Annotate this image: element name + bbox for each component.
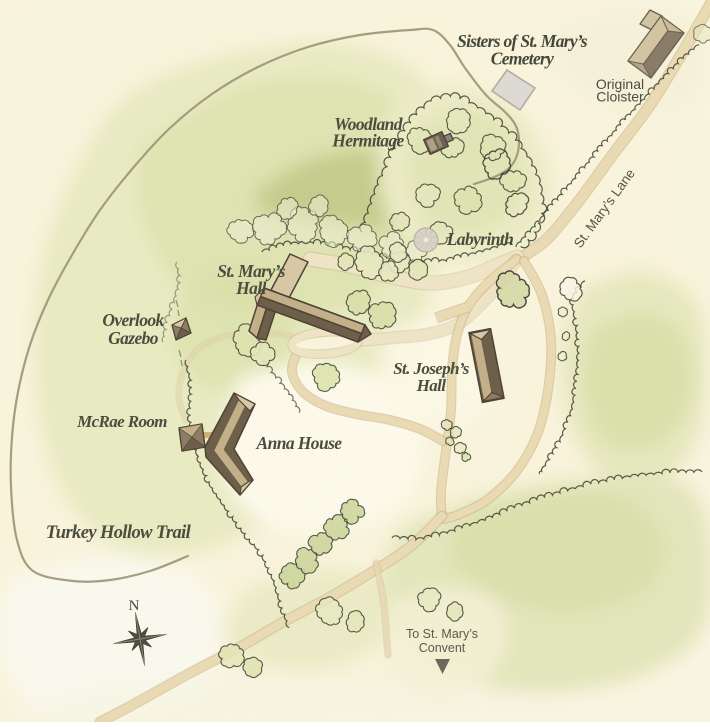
svg-text:OriginalCloister: OriginalCloister	[596, 76, 644, 105]
svg-text:McRae Room: McRae Room	[76, 412, 167, 431]
svg-text:Turkey Hollow Trail: Turkey Hollow Trail	[46, 523, 192, 543]
svg-text:OverlookGazebo: OverlookGazebo	[102, 310, 164, 348]
svg-text:WoodlandHermitage: WoodlandHermitage	[331, 114, 404, 151]
svg-text:Labyrinth: Labyrinth	[446, 229, 514, 249]
svg-text:Anna House: Anna House	[256, 433, 343, 453]
svg-text:N: N	[129, 598, 140, 614]
